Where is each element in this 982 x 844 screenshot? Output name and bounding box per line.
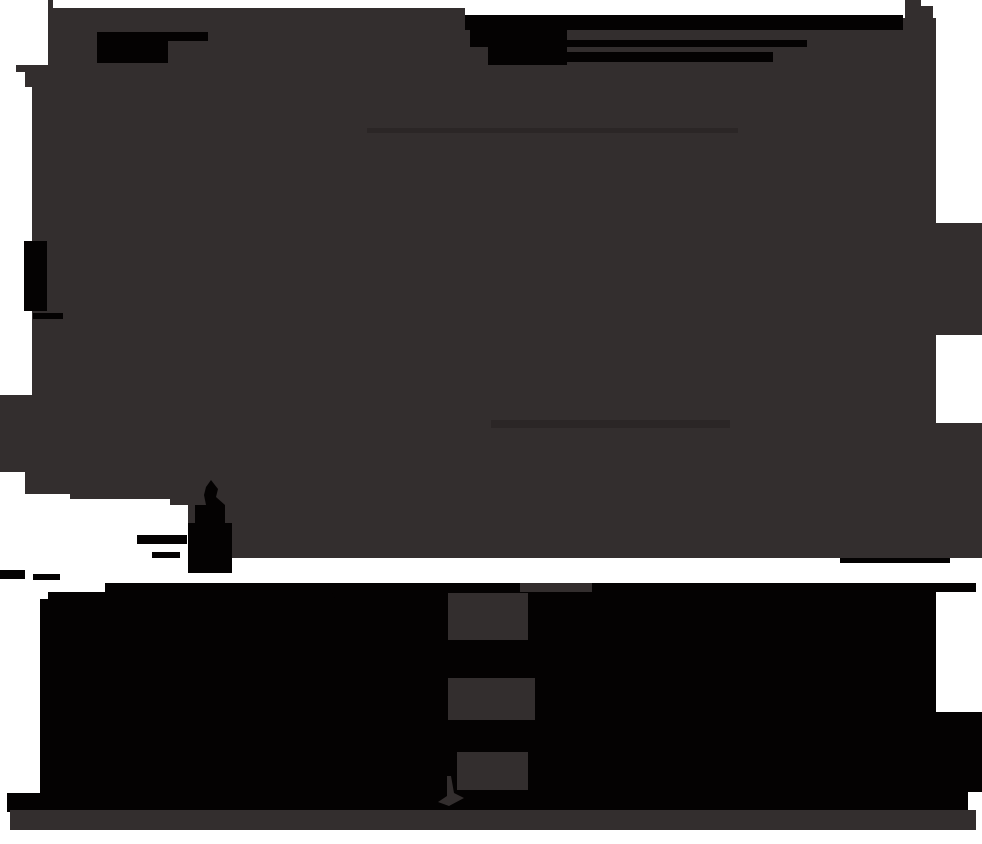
window-glow-bottom <box>457 752 528 790</box>
photo-canvas <box>0 0 982 844</box>
black-top-mass <box>488 30 567 65</box>
fragment-left-b <box>152 552 180 558</box>
black-streak-low <box>560 52 773 62</box>
black-left-bar <box>24 241 47 311</box>
bottom-gray-strip <box>10 810 976 830</box>
black-streak-mid <box>560 40 807 47</box>
fragment-left-a <box>137 535 187 544</box>
main-silhouette <box>0 0 982 558</box>
faint-streak-lower <box>491 420 730 428</box>
window-glow-strip <box>520 583 592 592</box>
window-glow-middle <box>448 678 535 720</box>
fragment-edge-a <box>0 570 25 579</box>
faint-streak-upper <box>367 128 738 133</box>
corner-black-block <box>7 793 40 812</box>
underexposed-photo <box>0 0 982 844</box>
fragment-edge-b <box>33 574 60 580</box>
black-top-band <box>533 15 903 30</box>
thin-black-ledge <box>840 558 950 563</box>
window-glow-top <box>448 593 528 640</box>
black-left-bar-foot <box>33 313 63 319</box>
